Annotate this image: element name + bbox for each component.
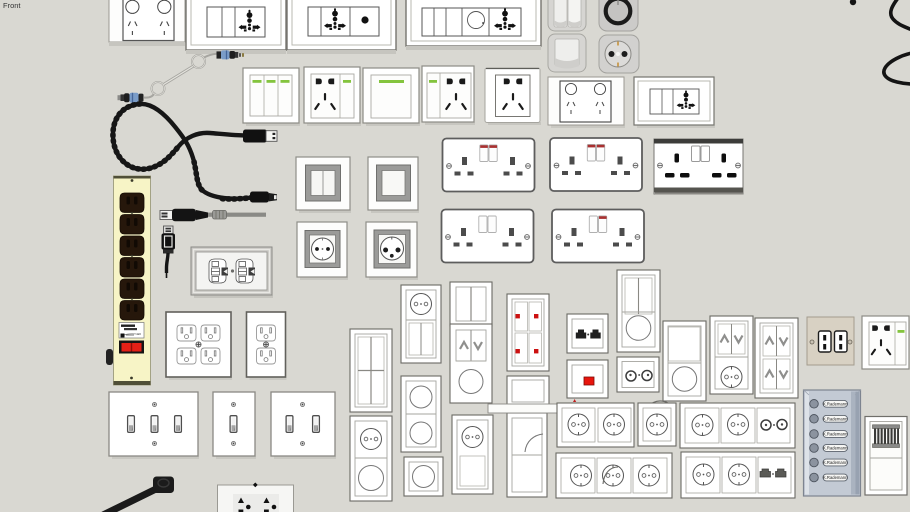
svg-text:K.Rademann: K.Rademann (823, 460, 848, 465)
svg-text:K.Rademann: K.Rademann (823, 432, 848, 437)
svg-text:K.Rademann: K.Rademann (823, 402, 848, 407)
svg-text:K.Rademann: K.Rademann (823, 475, 848, 480)
svg-text:K.Rademann: K.Rademann (823, 446, 848, 451)
svg-text:K.Rademann: K.Rademann (823, 417, 848, 422)
svg-text:Front: Front (3, 1, 21, 10)
